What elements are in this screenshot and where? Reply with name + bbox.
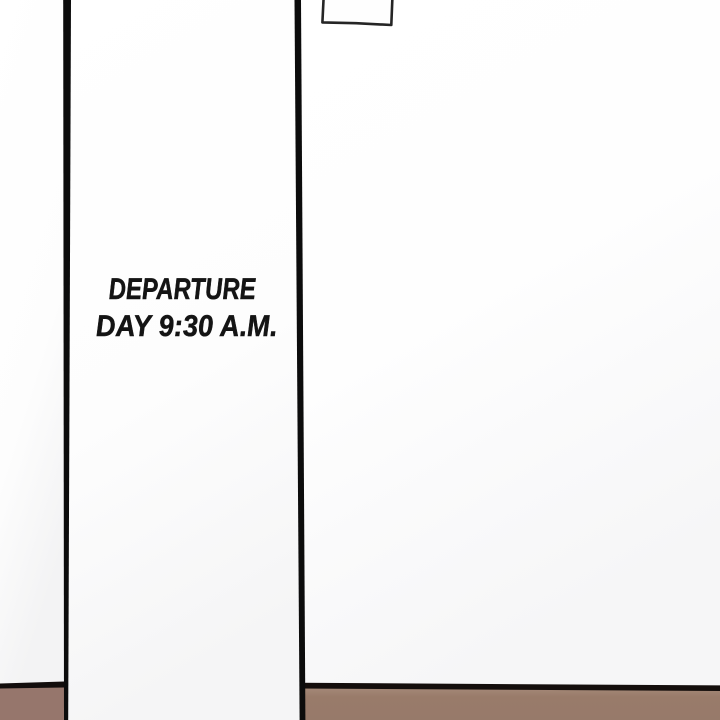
svg-text:DEPARTURE: DEPARTURE bbox=[108, 271, 257, 305]
svg-text:DAY 9:30 A.M.: DAY 9:30 A.M. bbox=[95, 310, 278, 343]
